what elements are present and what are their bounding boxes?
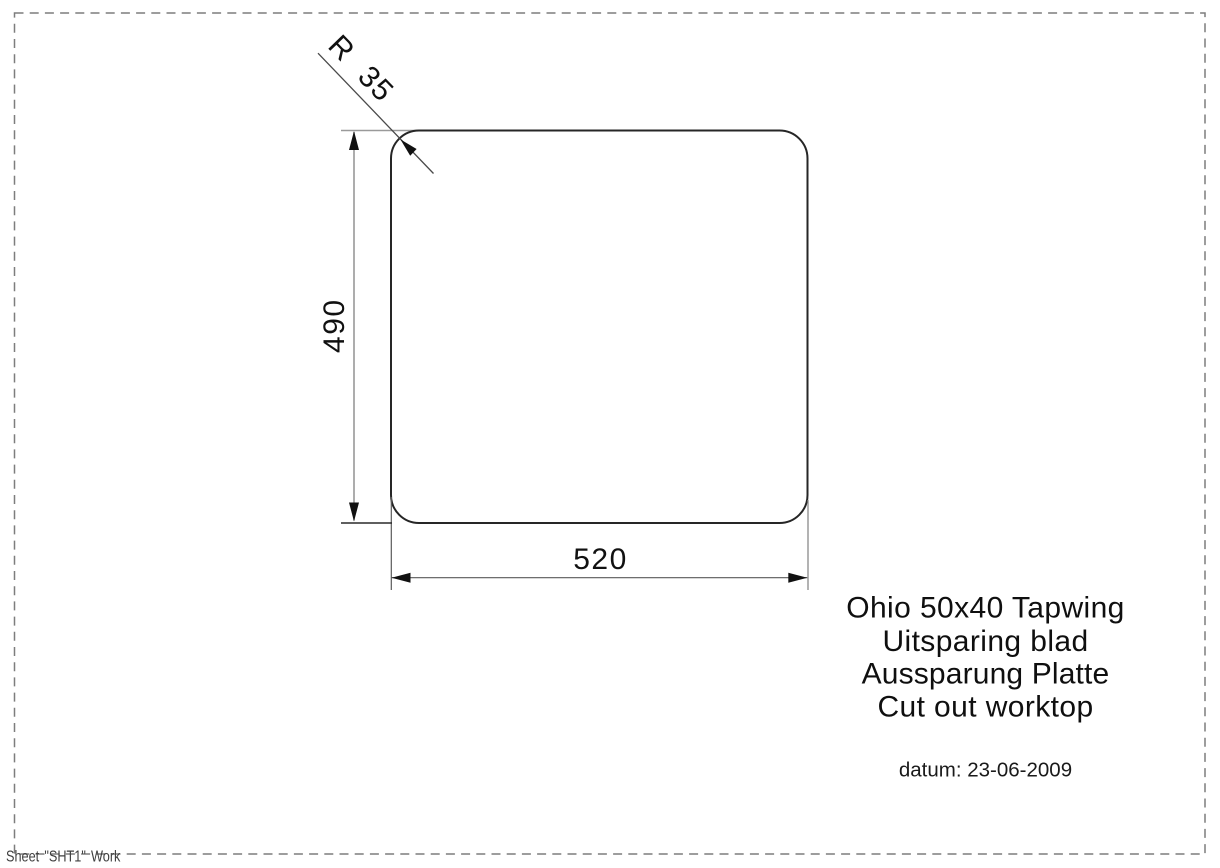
svg-text:Uitsparing blad: Uitsparing blad <box>882 625 1088 658</box>
svg-text:datum: 23-06-2009: datum: 23-06-2009 <box>899 759 1072 782</box>
svg-text:490: 490 <box>318 298 351 353</box>
svg-text:Sheet "SHT1" Work: Sheet "SHT1" Work <box>6 848 121 866</box>
svg-text:Cut out worktop: Cut out worktop <box>877 691 1093 724</box>
svg-text:Ohio 50x40 Tapwing: Ohio 50x40 Tapwing <box>846 592 1125 625</box>
svg-text:Aussparung Platte: Aussparung Platte <box>862 658 1110 691</box>
svg-text:520: 520 <box>573 543 628 576</box>
